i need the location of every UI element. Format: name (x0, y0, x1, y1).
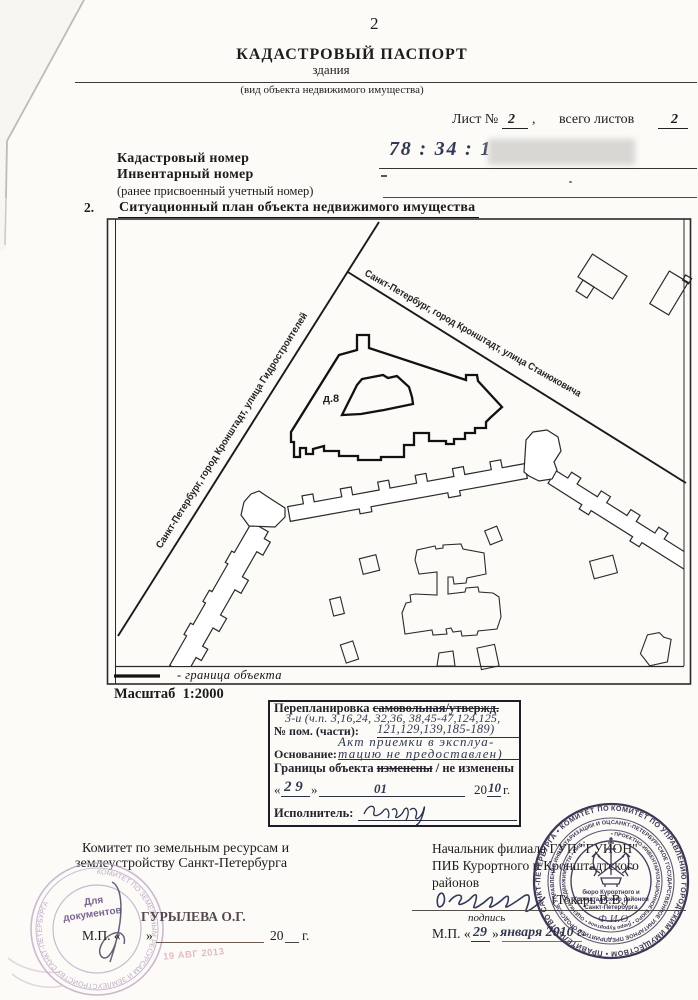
svg-text:бюро Курортного и: бюро Курортного и (582, 889, 640, 896)
svg-text:Кронштадтского районов: Кронштадтского районов (573, 896, 649, 903)
svg-text:д.8: д.8 (323, 393, 339, 405)
svg-text:Санкт-Петербург, город Кроншта: Санкт-Петербург, город Кронштадт, улица … (153, 310, 310, 550)
svg-text:Санкт-Петербург, город Кроншта: Санкт-Петербург, город Кронштадт, улица … (363, 267, 584, 400)
svg-text:Санкт-Петербурга: Санкт-Петербурга (584, 904, 638, 911)
svg-text:- граница объекта: - граница объекта (177, 668, 282, 682)
